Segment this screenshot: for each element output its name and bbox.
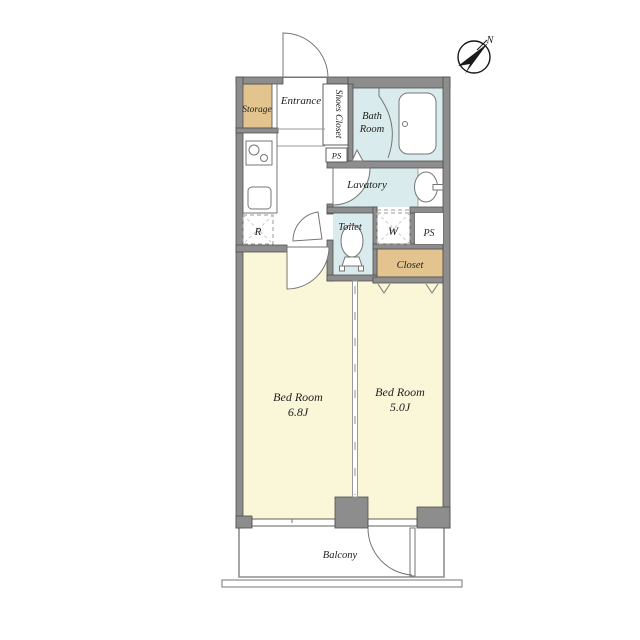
wall-segment	[236, 245, 287, 252]
bedroom-left-label: Bed Room	[273, 390, 323, 404]
refrigerator-label: R	[254, 226, 262, 238]
floor-plan: N Storage Entrance Shoes Closet PS Bath …	[0, 0, 640, 640]
wall-segment	[410, 213, 415, 244]
toilet-foot	[340, 266, 345, 271]
wall-segment	[348, 84, 353, 162]
entrance-label: Entrance	[280, 95, 321, 107]
wall-segment	[327, 275, 377, 281]
wall-segment	[236, 128, 278, 133]
bedroom-left-floor	[243, 250, 353, 520]
kitchen-sink	[248, 187, 271, 209]
pillar-left	[236, 516, 252, 528]
lavatory-label: Lavatory	[346, 179, 387, 191]
closet-label: Closet	[397, 260, 425, 271]
bathtub	[399, 93, 436, 154]
ps-right-label: PS	[422, 228, 434, 239]
bedroom-partition	[353, 281, 358, 497]
toilet-base	[342, 257, 362, 266]
wall-segment	[327, 207, 377, 213]
wall-segment	[443, 77, 450, 528]
compass: N	[458, 35, 495, 74]
toilet-foot	[359, 266, 364, 271]
bedroom-right-label: Bed Room	[375, 385, 425, 399]
balcony-door-swing	[368, 528, 412, 575]
balcony-door-leaf	[410, 528, 415, 576]
bedroom-left-size: 6.8J	[288, 405, 309, 419]
compass-north-label: N	[486, 35, 495, 46]
bathroom-label-line1: Bath	[362, 111, 382, 122]
wall-segment	[348, 77, 450, 88]
storage-label: Storage	[242, 105, 272, 115]
balcony-label: Balcony	[323, 550, 358, 561]
wall-segment	[327, 77, 348, 84]
wall-segment	[410, 207, 443, 213]
ps-upper-label: PS	[331, 151, 342, 161]
pillar-right	[417, 507, 450, 528]
bedroom-right-size: 5.0J	[390, 400, 411, 414]
washer-label: W	[388, 224, 399, 238]
washbasin-faucet	[433, 185, 443, 191]
pillar-center	[335, 497, 368, 528]
shoes-closet-label: Shoes Closet	[333, 90, 343, 139]
toilet-label: Toilet	[338, 222, 363, 233]
balcony-slab	[222, 580, 462, 587]
bedroom-left-window	[252, 519, 335, 526]
wall-segment	[373, 244, 443, 249]
wall-segment	[373, 277, 443, 283]
entrance-door-swing	[283, 33, 328, 77]
wall-segment	[236, 77, 243, 528]
balcony-door-opening	[368, 519, 417, 526]
bathroom-label-line2: Room	[359, 124, 385, 135]
